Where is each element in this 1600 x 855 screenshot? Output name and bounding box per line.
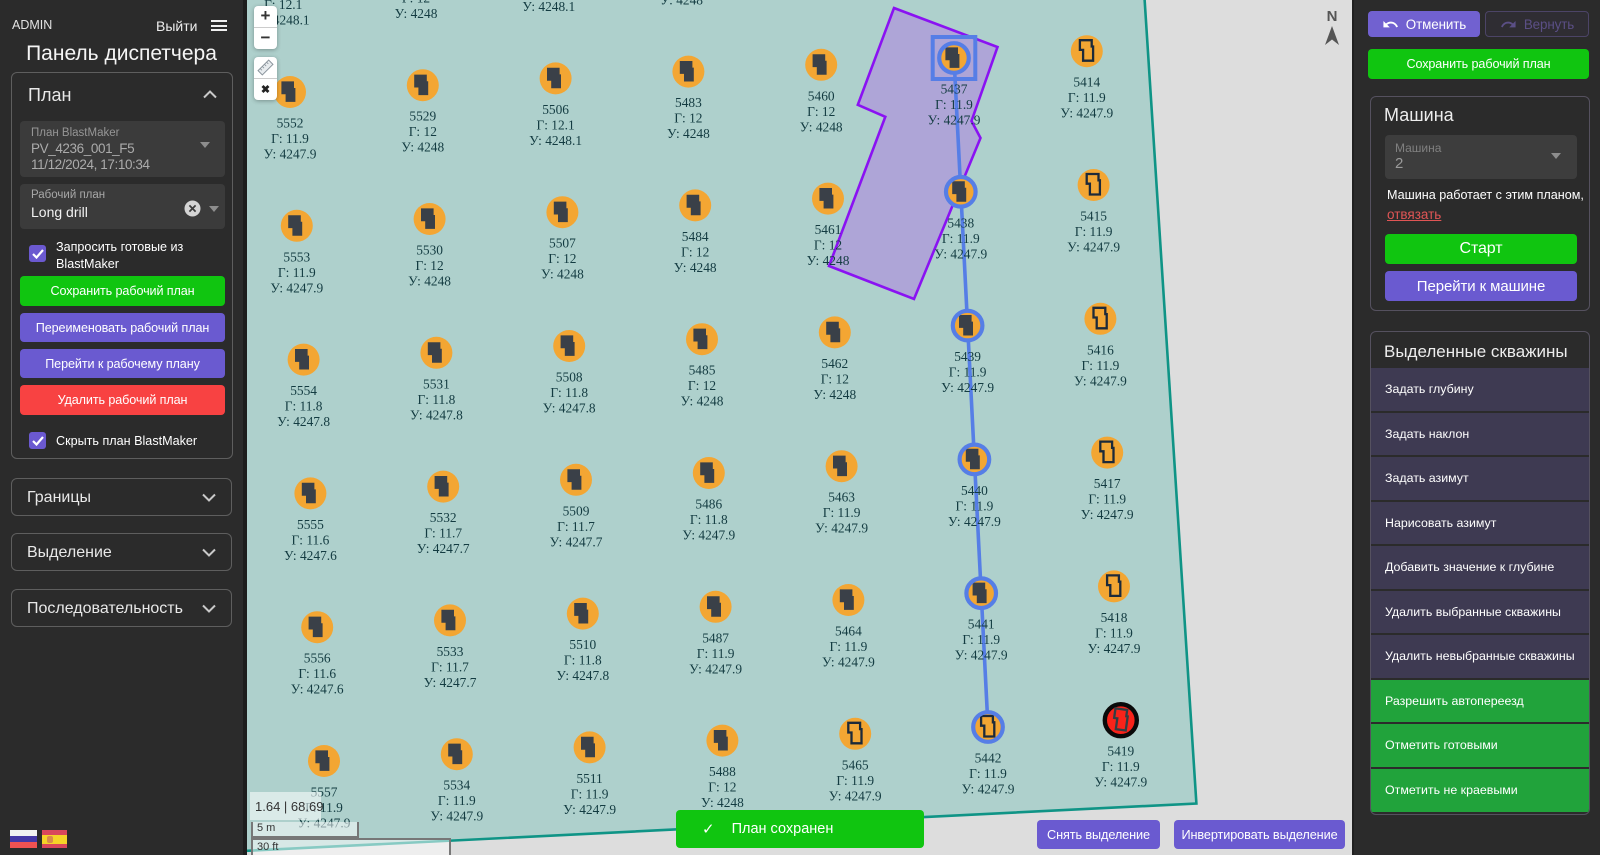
- svg-text:Г: 12: Г: 12: [674, 111, 702, 126]
- svg-text:5510: 5510: [569, 637, 596, 652]
- svg-text:Г: 12: Г: 12: [409, 124, 437, 139]
- svg-text:У: 4247.6: У: 4247.6: [284, 548, 337, 563]
- svg-text:5438: 5438: [947, 215, 974, 230]
- svg-text:5506: 5506: [542, 102, 569, 117]
- svg-text:Г: 11.9: Г: 11.9: [823, 505, 861, 520]
- svg-text:У: 4248: У: 4248: [660, 0, 703, 7]
- svg-text:У: 4247.8: У: 4247.8: [410, 407, 463, 422]
- svg-text:Г: 11.9: Г: 11.9: [697, 646, 735, 661]
- svg-text:5442: 5442: [975, 751, 1002, 766]
- svg-text:5533: 5533: [437, 644, 464, 659]
- svg-text:5465: 5465: [842, 757, 869, 772]
- svg-text:5464: 5464: [835, 624, 862, 639]
- svg-text:5415: 5415: [1080, 209, 1107, 224]
- svg-text:Г: 11.7: Г: 11.7: [557, 519, 595, 534]
- svg-text:У: 4247.9: У: 4247.9: [928, 113, 981, 128]
- svg-text:5485: 5485: [689, 363, 716, 378]
- svg-text:5509: 5509: [563, 503, 590, 518]
- svg-text:Г: 12: Г: 12: [402, 0, 430, 5]
- svg-text:У: 4248: У: 4248: [800, 119, 843, 134]
- svg-text:5487: 5487: [702, 630, 729, 645]
- svg-text:Г: 11.9: Г: 11.9: [1075, 224, 1113, 239]
- svg-text:Г: 12: Г: 12: [807, 104, 835, 119]
- svg-text:У: 4247.9: У: 4247.9: [1088, 641, 1141, 656]
- svg-text:У: 4247.8: У: 4247.8: [556, 668, 609, 683]
- svg-text:У: 4247.9: У: 4247.9: [941, 380, 994, 395]
- svg-text:У: 4248: У: 4248: [807, 253, 850, 268]
- svg-text:Г: 12: Г: 12: [688, 378, 716, 393]
- svg-text:5440: 5440: [961, 483, 988, 498]
- svg-text:Г: 12: Г: 12: [681, 244, 709, 259]
- svg-text:У: 4248: У: 4248: [674, 260, 717, 275]
- svg-text:Г: 11.6: Г: 11.6: [292, 532, 330, 547]
- svg-text:5486: 5486: [695, 497, 722, 512]
- svg-text:Г: 11.8: Г: 11.8: [690, 512, 728, 527]
- svg-text:Г: 11.9: Г: 11.9: [969, 766, 1007, 781]
- svg-text:Г: 11.8: Г: 11.8: [418, 392, 456, 407]
- svg-text:5483: 5483: [675, 95, 702, 110]
- svg-text:Г: 11.9: Г: 11.9: [942, 231, 980, 246]
- svg-text:У: 4248: У: 4248: [813, 387, 856, 402]
- svg-text:5529: 5529: [409, 109, 436, 124]
- svg-text:5463: 5463: [828, 490, 855, 505]
- svg-text:5530: 5530: [416, 243, 443, 258]
- svg-text:Г: 11.7: Г: 11.7: [431, 659, 469, 674]
- svg-text:У: 4248: У: 4248: [681, 394, 724, 409]
- svg-text:Г: 11.9: Г: 11.9: [271, 131, 309, 146]
- svg-text:5419: 5419: [1107, 744, 1134, 759]
- svg-text:У: 4247.9: У: 4247.9: [822, 655, 875, 670]
- svg-text:Г: 11.7: Г: 11.7: [424, 526, 462, 541]
- svg-text:5462: 5462: [821, 356, 848, 371]
- svg-text:5439: 5439: [954, 349, 981, 364]
- svg-text:У: 4247.9: У: 4247.9: [1060, 106, 1113, 121]
- svg-text:У: 4248.1: У: 4248.1: [522, 0, 575, 14]
- svg-text:Г: 11.9: Г: 11.9: [438, 793, 476, 808]
- svg-text:5532: 5532: [430, 510, 457, 525]
- svg-text:Г: 12.1: Г: 12.1: [536, 117, 574, 132]
- svg-text:5441: 5441: [968, 617, 995, 632]
- svg-text:5534: 5534: [443, 778, 470, 793]
- svg-text:У: 4247.6: У: 4247.6: [291, 682, 344, 697]
- svg-text:Г: 11.9: Г: 11.9: [935, 97, 973, 112]
- svg-text:5555: 5555: [297, 517, 324, 532]
- svg-text:Г: 11.9: Г: 11.9: [949, 365, 987, 380]
- svg-text:Г: 11.9: Г: 11.9: [962, 632, 1000, 647]
- svg-text:Г: 12: Г: 12: [548, 251, 576, 266]
- svg-text:У: 4247.9: У: 4247.9: [1067, 240, 1120, 255]
- svg-text:5554: 5554: [290, 383, 317, 398]
- svg-text:Г: 12: Г: 12: [814, 238, 842, 253]
- svg-text:5461: 5461: [815, 222, 842, 237]
- svg-text:5460: 5460: [808, 88, 835, 103]
- svg-text:Г: 11.6: Г: 11.6: [298, 666, 336, 681]
- svg-text:У: 4247.9: У: 4247.9: [1074, 373, 1127, 388]
- svg-text:5417: 5417: [1094, 476, 1121, 491]
- svg-text:У: 4247.9: У: 4247.9: [962, 782, 1015, 797]
- svg-text:У: 4247.7: У: 4247.7: [550, 534, 603, 549]
- svg-text:Г: 11.8: Г: 11.8: [285, 399, 323, 414]
- svg-text:У: 4247.9: У: 4247.9: [815, 521, 868, 536]
- svg-text:Г: 11.9: Г: 11.9: [1102, 759, 1140, 774]
- svg-text:Г: 11.8: Г: 11.8: [564, 653, 602, 668]
- svg-text:Г: 11.9: Г: 11.9: [1095, 625, 1133, 640]
- svg-text:У: 4247.9: У: 4247.9: [1094, 775, 1147, 790]
- svg-text:5437: 5437: [941, 82, 968, 97]
- svg-text:Г: 11.8: Г: 11.8: [550, 385, 588, 400]
- svg-text:Г: 12: Г: 12: [821, 371, 849, 386]
- svg-text:5556: 5556: [304, 651, 331, 666]
- svg-text:У: 4248: У: 4248: [701, 795, 744, 810]
- svg-text:У: 4247.9: У: 4247.9: [682, 528, 735, 543]
- svg-text:5418: 5418: [1101, 610, 1128, 625]
- svg-text:У: 4248: У: 4248: [667, 126, 710, 141]
- svg-text:Г: 11.9: Г: 11.9: [836, 773, 874, 788]
- svg-text:У: 4247.9: У: 4247.9: [934, 246, 987, 261]
- svg-text:У: 4248: У: 4248: [395, 6, 438, 21]
- svg-text:У: 4247.9: У: 4247.9: [829, 788, 882, 803]
- svg-text:Г: 11.9: Г: 11.9: [571, 786, 609, 801]
- svg-text:5511: 5511: [576, 771, 602, 786]
- svg-text:5488: 5488: [709, 764, 736, 779]
- svg-text:У: 4247.9: У: 4247.9: [948, 514, 1001, 529]
- svg-text:У: 4247.9: У: 4247.9: [689, 661, 742, 676]
- svg-text:Г: 12: Г: 12: [708, 780, 736, 795]
- svg-text:Г: 11.9: Г: 11.9: [1082, 358, 1120, 373]
- svg-text:5552: 5552: [277, 116, 304, 131]
- svg-text:5507: 5507: [549, 236, 576, 251]
- svg-text:5414: 5414: [1073, 75, 1100, 90]
- svg-text:У: 4247.8: У: 4247.8: [543, 401, 596, 416]
- svg-text:Г: 11.9: Г: 11.9: [278, 265, 316, 280]
- svg-text:У: 4247.8: У: 4247.8: [277, 414, 330, 429]
- svg-text:5484: 5484: [682, 229, 709, 244]
- svg-text:У: 4247.9: У: 4247.9: [1081, 507, 1134, 522]
- svg-text:У: 4248: У: 4248: [541, 267, 584, 282]
- svg-text:Г: 11.9: Г: 11.9: [1088, 492, 1126, 507]
- svg-text:У: 4248: У: 4248: [401, 140, 444, 155]
- svg-text:У: 4247.7: У: 4247.7: [424, 675, 477, 690]
- svg-text:У: 4247.9: У: 4247.9: [563, 802, 616, 817]
- svg-text:У: 4247.9: У: 4247.9: [264, 147, 317, 162]
- svg-text:У: 4247.9: У: 4247.9: [270, 280, 323, 295]
- svg-text:5508: 5508: [556, 370, 583, 385]
- svg-text:Г: 11.9: Г: 11.9: [830, 639, 868, 654]
- svg-text:У: 4247.9: У: 4247.9: [955, 648, 1008, 663]
- svg-text:У: 4247.7: У: 4247.7: [417, 541, 470, 556]
- svg-text:Г: 12: Г: 12: [415, 258, 443, 273]
- svg-text:Г: 11.9: Г: 11.9: [956, 498, 994, 513]
- svg-text:5531: 5531: [423, 376, 450, 391]
- svg-text:У: 4248.1: У: 4248.1: [529, 133, 582, 148]
- svg-text:У: 4247.9: У: 4247.9: [430, 809, 483, 824]
- svg-text:5416: 5416: [1087, 342, 1114, 357]
- svg-text:5553: 5553: [283, 249, 310, 264]
- svg-text:Г: 11.9: Г: 11.9: [1068, 90, 1106, 105]
- svg-text:У: 4248: У: 4248: [408, 274, 451, 289]
